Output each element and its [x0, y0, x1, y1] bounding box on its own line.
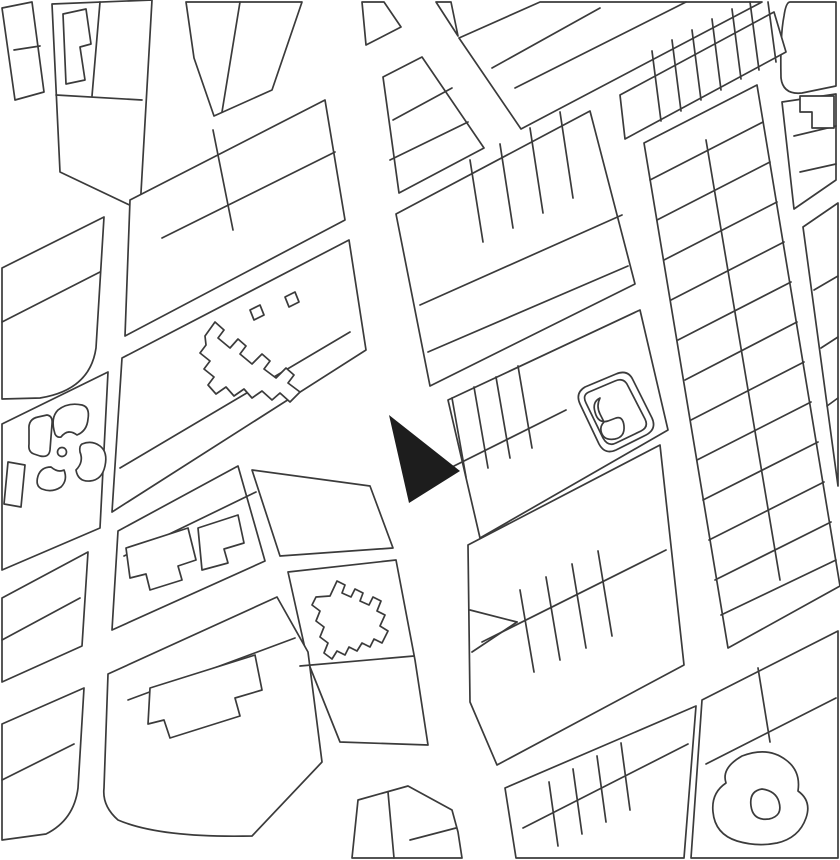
city-blocks-layer [2, 0, 840, 858]
park-bed-nw [29, 415, 52, 456]
city-map-canvas [0, 0, 840, 860]
block-nw-upper [186, 2, 302, 116]
block-south-small [352, 786, 462, 858]
block-west-upper [2, 217, 104, 399]
park-center-circle [58, 448, 67, 457]
block-nw-corner-strip [2, 2, 44, 100]
site-marker-triangle [389, 415, 460, 503]
block-top-far-right-rounded [781, 2, 836, 93]
site-plan-map [0, 0, 840, 860]
block-west-lower [2, 688, 84, 840]
block-wedge-apex [252, 470, 393, 556]
park-strip-parcel [4, 462, 25, 507]
block-top-center-small [362, 2, 401, 45]
block-top-sliver [436, 2, 458, 36]
park-bed-se [76, 442, 106, 481]
block-top-center-trapezoid [383, 57, 484, 193]
park-bed-sw [37, 467, 65, 491]
